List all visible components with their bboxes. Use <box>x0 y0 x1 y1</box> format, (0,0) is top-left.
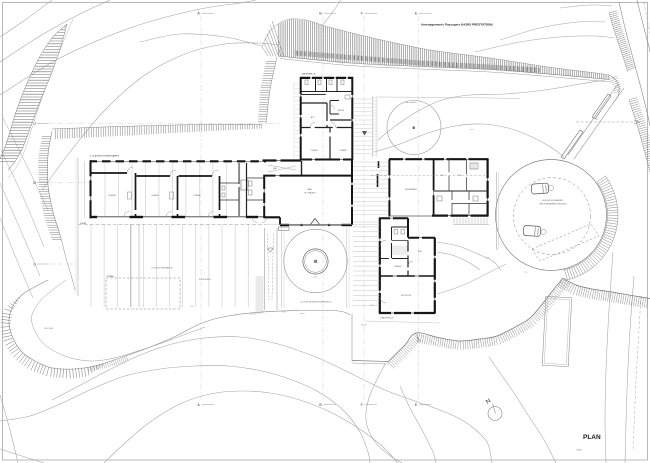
svg-text:CLASSE: CLASSE <box>151 194 159 197</box>
svg-text:parvis: parvis <box>300 312 305 315</box>
svg-text:8.8.8: 8.8.8 <box>190 306 194 308</box>
svg-text:voie: voie <box>486 257 489 259</box>
svg-text:CLASSE: CLASSE <box>108 194 116 197</box>
svg-text:PELOUSE: PELOUSE <box>44 328 54 330</box>
svg-text:bassin: bassin <box>313 277 318 279</box>
svg-text:terrasse: terrasse <box>250 313 256 316</box>
svg-text:8.8.8: 8.8.8 <box>370 305 374 307</box>
svg-text:CUIS.: CUIS. <box>457 175 462 177</box>
svg-text:COUR DE RÉCRÉATION: COUR DE RÉCRÉATION <box>151 267 173 270</box>
svg-text:POLYVALENT: POLYVALENT <box>304 192 316 195</box>
svg-text:1 MATERNELLE: 1 MATERNELLE <box>380 317 394 320</box>
svg-text:BUS DE SCOLAIRES /: BUS DE SCOLAIRES / <box>542 199 564 202</box>
svg-text:MATERNELLE: MATERNELLE <box>302 73 316 76</box>
svg-text:5 CLASSES ÉLÉMENTAIRES: 5 CLASSES ÉLÉMENTAIRES <box>90 155 120 158</box>
svg-text:8.8.8: 8.8.8 <box>282 312 286 314</box>
svg-text:RETOURNEMENT DES BUS: RETOURNEMENT DES BUS <box>539 204 567 206</box>
svg-text:REPOS: REPOS <box>338 110 345 112</box>
svg-text:CLASSE: CLASSE <box>193 194 201 197</box>
svg-text:PRÉAU: PRÉAU <box>107 275 114 278</box>
svg-text:ATELIER: ATELIER <box>395 265 403 268</box>
svg-text:piste: piste <box>470 128 474 131</box>
svg-text:COUR DE RÉCRÉATION MATERNELLE: COUR DE RÉCRÉATION MATERNELLE <box>301 301 333 304</box>
svg-text:CLASSE: CLASSE <box>310 149 318 152</box>
svg-text:terrasse: terrasse <box>361 324 367 327</box>
svg-text:PLAN: PLAN <box>583 434 601 441</box>
svg-text:MOTRICITÉ: MOTRICITÉ <box>401 294 412 297</box>
svg-text:OFF.: OFF. <box>440 175 444 177</box>
svg-text:Aménagements Paysagers (HORS P: Aménagements Paysagers (HORS PRESTATION) <box>421 23 493 27</box>
svg-text:ÉLÉMENTAIRE: ÉLÉMENTAIRE <box>199 278 212 281</box>
svg-text:PRÉAU: PRÉAU <box>80 222 87 225</box>
svg-text:8.8: 8.8 <box>525 272 527 274</box>
svg-text:HALL: HALL <box>307 188 313 191</box>
svg-text:1:500: 1:500 <box>576 450 582 452</box>
svg-text:aire arborée: aire arborée <box>406 102 418 104</box>
svg-text:CLASSE: CLASSE <box>339 149 347 152</box>
svg-text:ACT.: ACT. <box>311 116 315 119</box>
svg-text:RESTAURANT: RESTAURANT <box>405 188 418 191</box>
